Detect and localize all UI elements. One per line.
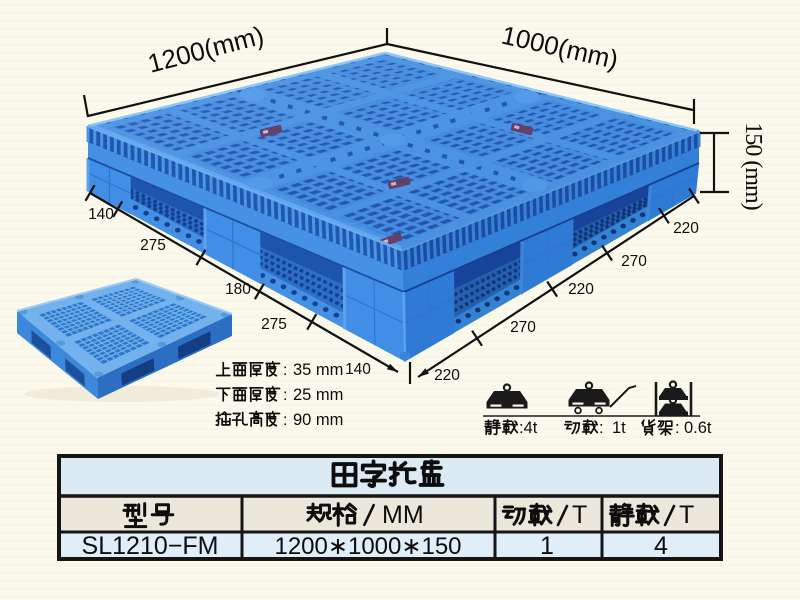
svg-text:275: 275 — [140, 237, 166, 254]
svg-text:SL1210−FM: SL1210−FM — [82, 532, 219, 560]
svg-text::: : — [599, 419, 604, 437]
svg-text::: : — [283, 387, 287, 404]
svg-text:1200∗1000∗150: 1200∗1000∗150 — [274, 533, 461, 560]
svg-text:1t: 1t — [612, 419, 626, 437]
svg-text:140: 140 — [88, 206, 114, 223]
svg-text::: : — [675, 419, 680, 437]
svg-text:220: 220 — [434, 367, 460, 384]
svg-text:180: 180 — [225, 281, 251, 298]
svg-text::: : — [283, 412, 287, 429]
svg-text:T: T — [572, 501, 587, 529]
svg-text:T: T — [679, 501, 694, 529]
svg-text:MM: MM — [382, 501, 424, 529]
svg-text:0.6t: 0.6t — [684, 419, 712, 437]
svg-text:150 (mm): 150 (mm) — [740, 122, 766, 209]
svg-text:35 mm: 35 mm — [293, 361, 343, 379]
svg-text::4t: :4t — [519, 419, 538, 437]
svg-text:90 mm: 90 mm — [293, 411, 343, 429]
svg-text:140: 140 — [345, 361, 371, 378]
svg-text:270: 270 — [621, 253, 647, 270]
svg-text:220: 220 — [673, 220, 699, 237]
svg-text:4: 4 — [654, 532, 668, 560]
svg-text:25 mm: 25 mm — [293, 386, 343, 404]
svg-text::: : — [283, 362, 287, 379]
svg-text:220: 220 — [568, 281, 594, 298]
svg-text:275: 275 — [261, 316, 287, 333]
svg-text:270: 270 — [510, 319, 536, 336]
svg-text:1: 1 — [540, 532, 554, 560]
